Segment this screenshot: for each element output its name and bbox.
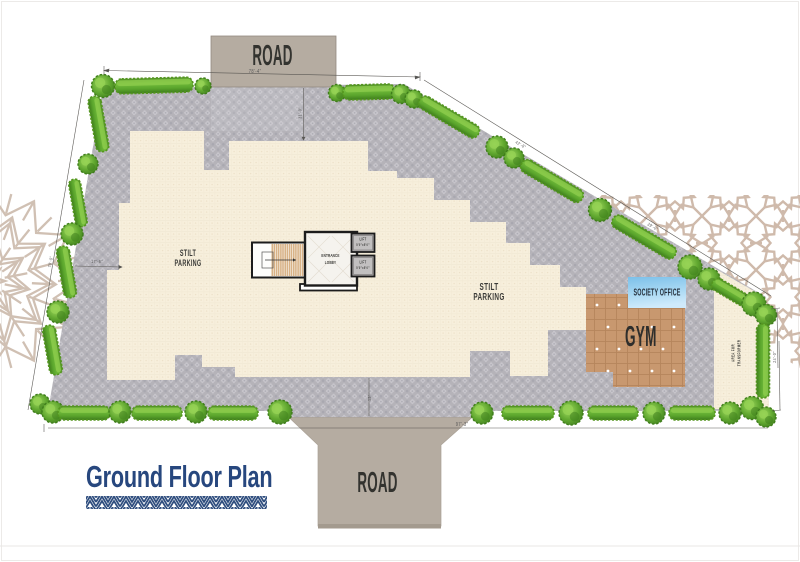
- svg-text:SOCIETY OFFICE: SOCIETY OFFICE: [633, 287, 680, 298]
- svg-text:LOBBY: LOBBY: [325, 259, 336, 265]
- svg-text:24’-0”: 24’-0”: [772, 351, 778, 363]
- svg-text:Ground Floor Plan: Ground Floor Plan: [86, 459, 272, 494]
- svg-text:PARKING: PARKING: [473, 292, 504, 303]
- svg-text:GYM: GYM: [625, 320, 657, 352]
- svg-text:13’: 13’: [367, 395, 373, 401]
- svg-text:PARKING: PARKING: [175, 258, 202, 269]
- svg-text:ROAD: ROAD: [357, 466, 397, 498]
- svg-text:ROAD: ROAD: [252, 39, 292, 71]
- svg-text:5’0”x5’0”: 5’0”x5’0”: [356, 242, 370, 247]
- svg-text:LIFT: LIFT: [359, 237, 366, 242]
- svg-text:5’0”x5’0”: 5’0”x5’0”: [356, 265, 370, 270]
- svg-text:31’-0”: 31’-0”: [297, 107, 303, 119]
- svg-text:17’-6”: 17’-6”: [91, 259, 103, 265]
- svg-text:TRANSFORMER: TRANSFORMER: [737, 340, 742, 366]
- svg-text:AREA FOR: AREA FOR: [731, 344, 736, 362]
- svg-text:ENTRANCE: ENTRANCE: [321, 252, 339, 258]
- svg-text:LIFT: LIFT: [359, 260, 366, 265]
- svg-text:97’-3”: 97’-3”: [456, 422, 469, 428]
